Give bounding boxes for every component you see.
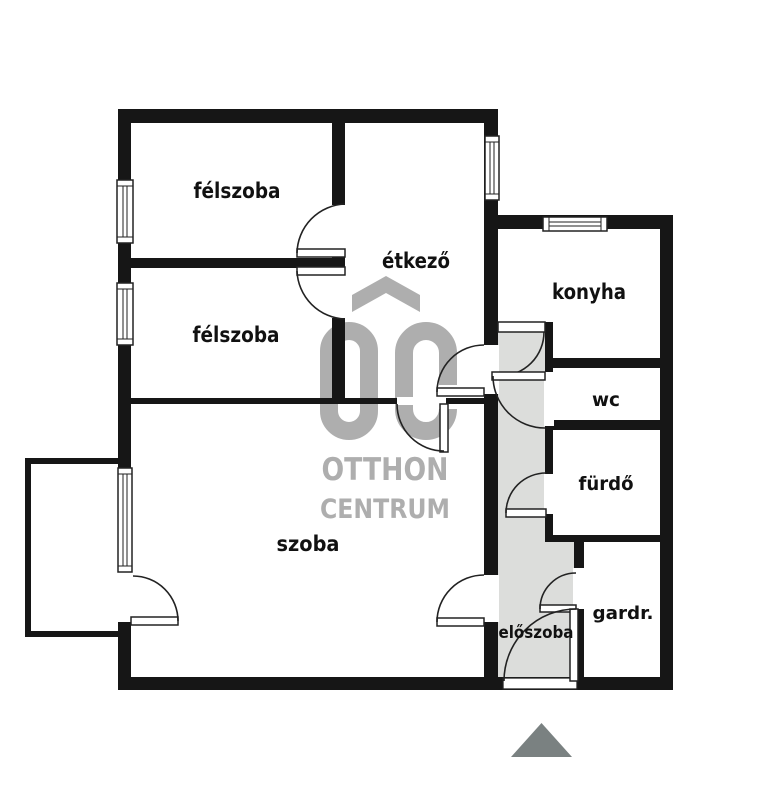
window-felszoba2	[117, 283, 133, 345]
room-label-gardrob: gardr.	[593, 603, 654, 624]
watermark-text-otthon: OTTHON	[322, 452, 449, 488]
exterior-right-wall	[660, 215, 673, 690]
entrance-door-sill	[503, 678, 577, 689]
room-label-furdo: fürdő	[579, 473, 634, 495]
konyha-bottom-wall	[545, 358, 660, 368]
window-balcony	[118, 468, 132, 572]
door-opening-szoba-eloszoba	[483, 575, 499, 622]
room-label-felszoba-1: félszoba	[194, 179, 281, 203]
room-label-konyha: konyha	[552, 280, 626, 304]
wc-bottom-wall	[552, 420, 660, 430]
room-label-etkezo: étkező	[382, 249, 450, 273]
room-label-felszoba-2: félszoba	[193, 323, 280, 347]
balcony-left-wall	[25, 458, 31, 637]
window-felszoba1	[117, 180, 133, 243]
floor-plan: OTTHON CENTRUM	[0, 0, 772, 800]
room-label-szoba: szoba	[277, 532, 340, 556]
door-opening-furdo	[544, 474, 554, 514]
window-etkezo	[485, 136, 499, 200]
window-konyha	[543, 217, 607, 231]
door-opening-szoba-etkezo	[397, 397, 446, 405]
watermark-text-centrum: CENTRUM	[320, 494, 450, 525]
furdo-bottom-wall	[545, 535, 660, 542]
door-leaf-szoba-eloszoba	[437, 618, 484, 626]
door-leaf-felszoba2	[297, 267, 345, 275]
door-leaf-entrance	[570, 609, 578, 681]
floor-plan-page: OTTHON CENTRUM	[0, 0, 772, 800]
door-leaf-szoba-etkezo	[440, 404, 448, 452]
exterior-top-wall	[118, 109, 498, 123]
room-label-eloszoba: előszoba	[499, 623, 574, 643]
exterior-bottom-wall	[118, 677, 673, 690]
door-leaf-furdo	[506, 509, 546, 517]
etkezo-left-wall	[332, 123, 345, 404]
door-leaf-konyha-eloszoba	[498, 322, 545, 332]
room-label-wc: wc	[592, 389, 620, 411]
balcony-bottom-wall	[25, 631, 118, 637]
door-opening-gardrob	[573, 568, 585, 609]
door-leaf-felszoba1	[297, 249, 345, 257]
door-leaf-etkezo-eloszoba	[437, 388, 484, 396]
door-opening-etkezo-eloszoba	[483, 345, 499, 394]
door-opening-balcony	[117, 572, 132, 622]
door-leaf-balcony	[131, 617, 178, 625]
balcony-top-wall	[25, 458, 118, 464]
door-leaf-wc	[492, 372, 545, 380]
